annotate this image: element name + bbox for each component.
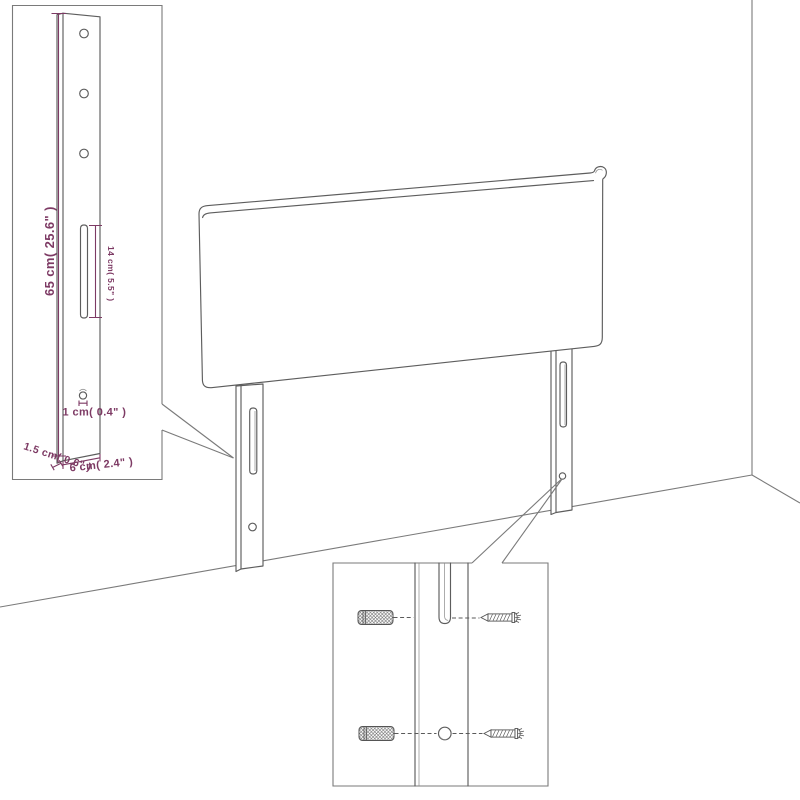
screw-icon xyxy=(481,613,521,623)
panel-outline xyxy=(199,167,606,388)
alignment-dashed-lines xyxy=(394,618,483,734)
floor-line-right xyxy=(752,475,800,503)
right-mounting-leg xyxy=(551,342,572,515)
leg-slot xyxy=(560,362,567,427)
dimension-label-height: 65 cm( 25.6" ) xyxy=(42,206,57,296)
mounting-detail-callout-lines xyxy=(472,479,562,563)
leg-slot xyxy=(250,408,257,474)
callout-line xyxy=(502,479,562,563)
leg-detail-callout-lines xyxy=(162,404,234,458)
floor-line-left xyxy=(0,475,752,607)
mounting-detail-inset xyxy=(333,563,548,786)
leg-detail-hole-1 xyxy=(80,29,89,38)
callout-line xyxy=(162,430,234,458)
headboard-assembly-diagram: 65 cm( 25.6" ) 14 cm( 5.5" ) 1 cm( 0.4" … xyxy=(0,0,800,800)
screw-icon xyxy=(484,729,524,739)
wall-plug-icon xyxy=(359,727,394,741)
leg-closeup xyxy=(415,563,468,786)
wall-plug-icon xyxy=(358,611,393,625)
leg-detail-inset: 65 cm( 25.6" ) 14 cm( 5.5" ) 1 cm( 0.4" … xyxy=(13,6,163,480)
leg-detail-hole-3 xyxy=(80,149,89,158)
leg-detail-slot xyxy=(81,225,88,318)
callout-line xyxy=(162,404,234,458)
leg-screw-hole xyxy=(249,523,257,531)
inset-frame xyxy=(333,563,548,786)
leg-detail-hole-2 xyxy=(80,89,89,98)
headboard-panel xyxy=(199,167,606,388)
callout-line xyxy=(472,479,562,563)
dimension-label-slot-length: 14 cm( 5.5" ) xyxy=(106,246,116,302)
slot-closeup-depth-line xyxy=(445,563,449,620)
leg-detail-small-hole xyxy=(79,392,86,399)
left-mounting-leg xyxy=(236,384,263,572)
diagram-canvas: 65 cm( 25.6" ) 14 cm( 5.5" ) 1 cm( 0.4" … xyxy=(0,0,800,800)
leg-screw-hole xyxy=(559,473,565,479)
dimension-label-hole: 1 cm( 0.4" ) xyxy=(63,407,127,419)
